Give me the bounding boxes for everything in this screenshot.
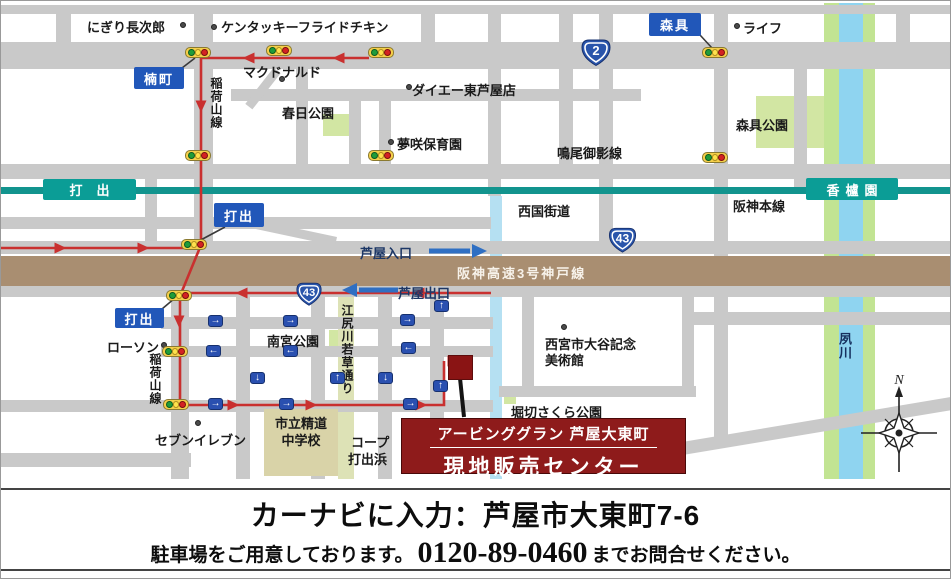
poi-dot xyxy=(734,23,740,29)
route-arrowhead xyxy=(138,243,150,254)
poi-label: 打出浜 xyxy=(348,449,387,468)
oneway-arrow-icon: → xyxy=(283,315,298,327)
poi-label: 阪神本線 xyxy=(733,196,785,215)
oneway-arrow-icon: ← xyxy=(401,342,416,354)
oneway-arrow-icon: ← xyxy=(206,345,221,357)
place-box: 打出 xyxy=(115,308,164,328)
route-shield-icon: 43 xyxy=(294,281,324,307)
road-name-vertical-label: 稲荷山線 xyxy=(208,77,224,161)
svg-text:43: 43 xyxy=(303,287,316,299)
oneway-arrow-icon: → xyxy=(403,398,418,410)
place-box: 打出 xyxy=(214,203,264,227)
route-shield-icon: 43 xyxy=(606,226,639,254)
contact-line: 駐車場をご用意しております。 0120-89-0460 までお問合せください。 xyxy=(1,536,950,570)
poi-label: ライフ xyxy=(743,18,782,37)
poi-label: 夢咲保育園 xyxy=(397,134,462,153)
oneway-arrow-icon: ↓ xyxy=(250,372,265,384)
traffic-light-icon xyxy=(266,45,292,56)
poi-label: 芦屋入口 xyxy=(360,243,412,262)
oneway-arrow-icon: ← xyxy=(283,345,298,357)
ramp-arrowhead xyxy=(472,244,487,258)
poi-dot xyxy=(180,22,186,28)
oneway-arrow-icon: → xyxy=(400,314,415,326)
poi-label: 鳴尾御影線 xyxy=(557,143,622,162)
route-arrowhead xyxy=(236,288,248,299)
poi-dot xyxy=(211,24,217,30)
route-arrowhead xyxy=(174,316,185,328)
oneway-arrow-icon: ↑ xyxy=(433,380,448,392)
leader-line xyxy=(182,58,195,68)
oneway-arrow-icon: → xyxy=(208,398,223,410)
compass-north-label: N xyxy=(893,373,904,388)
route-arrowhead xyxy=(333,53,345,64)
traffic-light-icon xyxy=(166,290,192,301)
traffic-light-icon xyxy=(702,47,728,58)
traffic-light-icon xyxy=(181,239,207,250)
poi-dot xyxy=(195,420,201,426)
place-box: 楠町 xyxy=(134,67,184,89)
road-name-vertical-label: 稲荷山線 xyxy=(147,353,163,437)
poi-label: にぎり長次郎 xyxy=(87,17,165,36)
route-arrowhead xyxy=(196,101,207,113)
poi-label: 西国街道 xyxy=(518,201,570,220)
traffic-light-icon xyxy=(368,47,394,58)
oneway-arrow-icon: → xyxy=(279,398,294,410)
oneway-arrow-icon: ↑ xyxy=(330,372,345,384)
poi-dot xyxy=(406,84,412,90)
destination-banner: アービンググラン 芦屋大東町 現地販売センター xyxy=(401,418,686,474)
ramp-arrowhead xyxy=(342,283,357,297)
poi-label: 森具公園 xyxy=(736,115,788,134)
traffic-light-icon xyxy=(702,152,728,163)
parking-note: 駐車場をご用意しております。 xyxy=(151,540,414,567)
traffic-light-icon xyxy=(185,47,211,58)
map-canvas: 打出 香櫨園 阪神高速3号神戸線 アービンググラン 芦屋大東町 現地販売センター… xyxy=(1,1,950,488)
poi-dot xyxy=(279,76,285,82)
poi-label: 春日公園 xyxy=(282,103,334,122)
contact-note: までお問合せください。 xyxy=(591,540,800,567)
route-arrowhead xyxy=(306,400,318,411)
traffic-light-icon xyxy=(368,150,394,161)
traffic-light-icon xyxy=(185,150,211,161)
poi-label: 美術館 xyxy=(545,350,584,369)
destination-building-marker xyxy=(448,355,473,380)
phone-number: 0120-89-0460 xyxy=(417,536,587,570)
road-name-vertical-label: 夙川 xyxy=(836,332,852,372)
oneway-arrow-icon: → xyxy=(208,315,223,327)
svg-text:43: 43 xyxy=(616,231,630,245)
oneway-arrow-icon: ↓ xyxy=(378,372,393,384)
poi-label: セブンイレブン xyxy=(155,430,246,449)
compass-rose-icon: N xyxy=(857,369,941,477)
route-shield-icon: 2 xyxy=(579,37,613,68)
oneway-arrow-icon: ↑ xyxy=(434,300,449,312)
road-name-vertical-label: 江尻川若草通り xyxy=(339,304,355,426)
access-map-screen: 打出 香櫨園 阪神高速3号神戸線 アービンググラン 芦屋大東町 現地販売センター… xyxy=(0,0,951,579)
svg-text:2: 2 xyxy=(592,43,599,58)
route-arrowhead xyxy=(228,400,240,411)
traffic-light-icon xyxy=(162,346,188,357)
footer-info-bar: カーナビに入力：芦屋市大東町7-6 駐車場をご用意しております。 0120-89… xyxy=(1,488,950,571)
route-arrowhead xyxy=(55,243,67,254)
destination-name: アービンググラン 芦屋大東町 xyxy=(430,423,658,448)
destination-leader-line xyxy=(460,378,464,417)
traffic-light-icon xyxy=(163,399,189,410)
place-box: 森具 xyxy=(649,13,701,36)
poi-dot xyxy=(388,139,394,145)
poi-label: ダイエー東芦屋店 xyxy=(412,80,516,99)
car-navi-address: カーナビに入力：芦屋市大東町7-6 xyxy=(1,494,950,534)
poi-dot xyxy=(561,324,567,330)
sales-center-label: 現地販売センター xyxy=(402,451,685,481)
poi-label: ケンタッキーフライドチキン xyxy=(221,17,388,36)
